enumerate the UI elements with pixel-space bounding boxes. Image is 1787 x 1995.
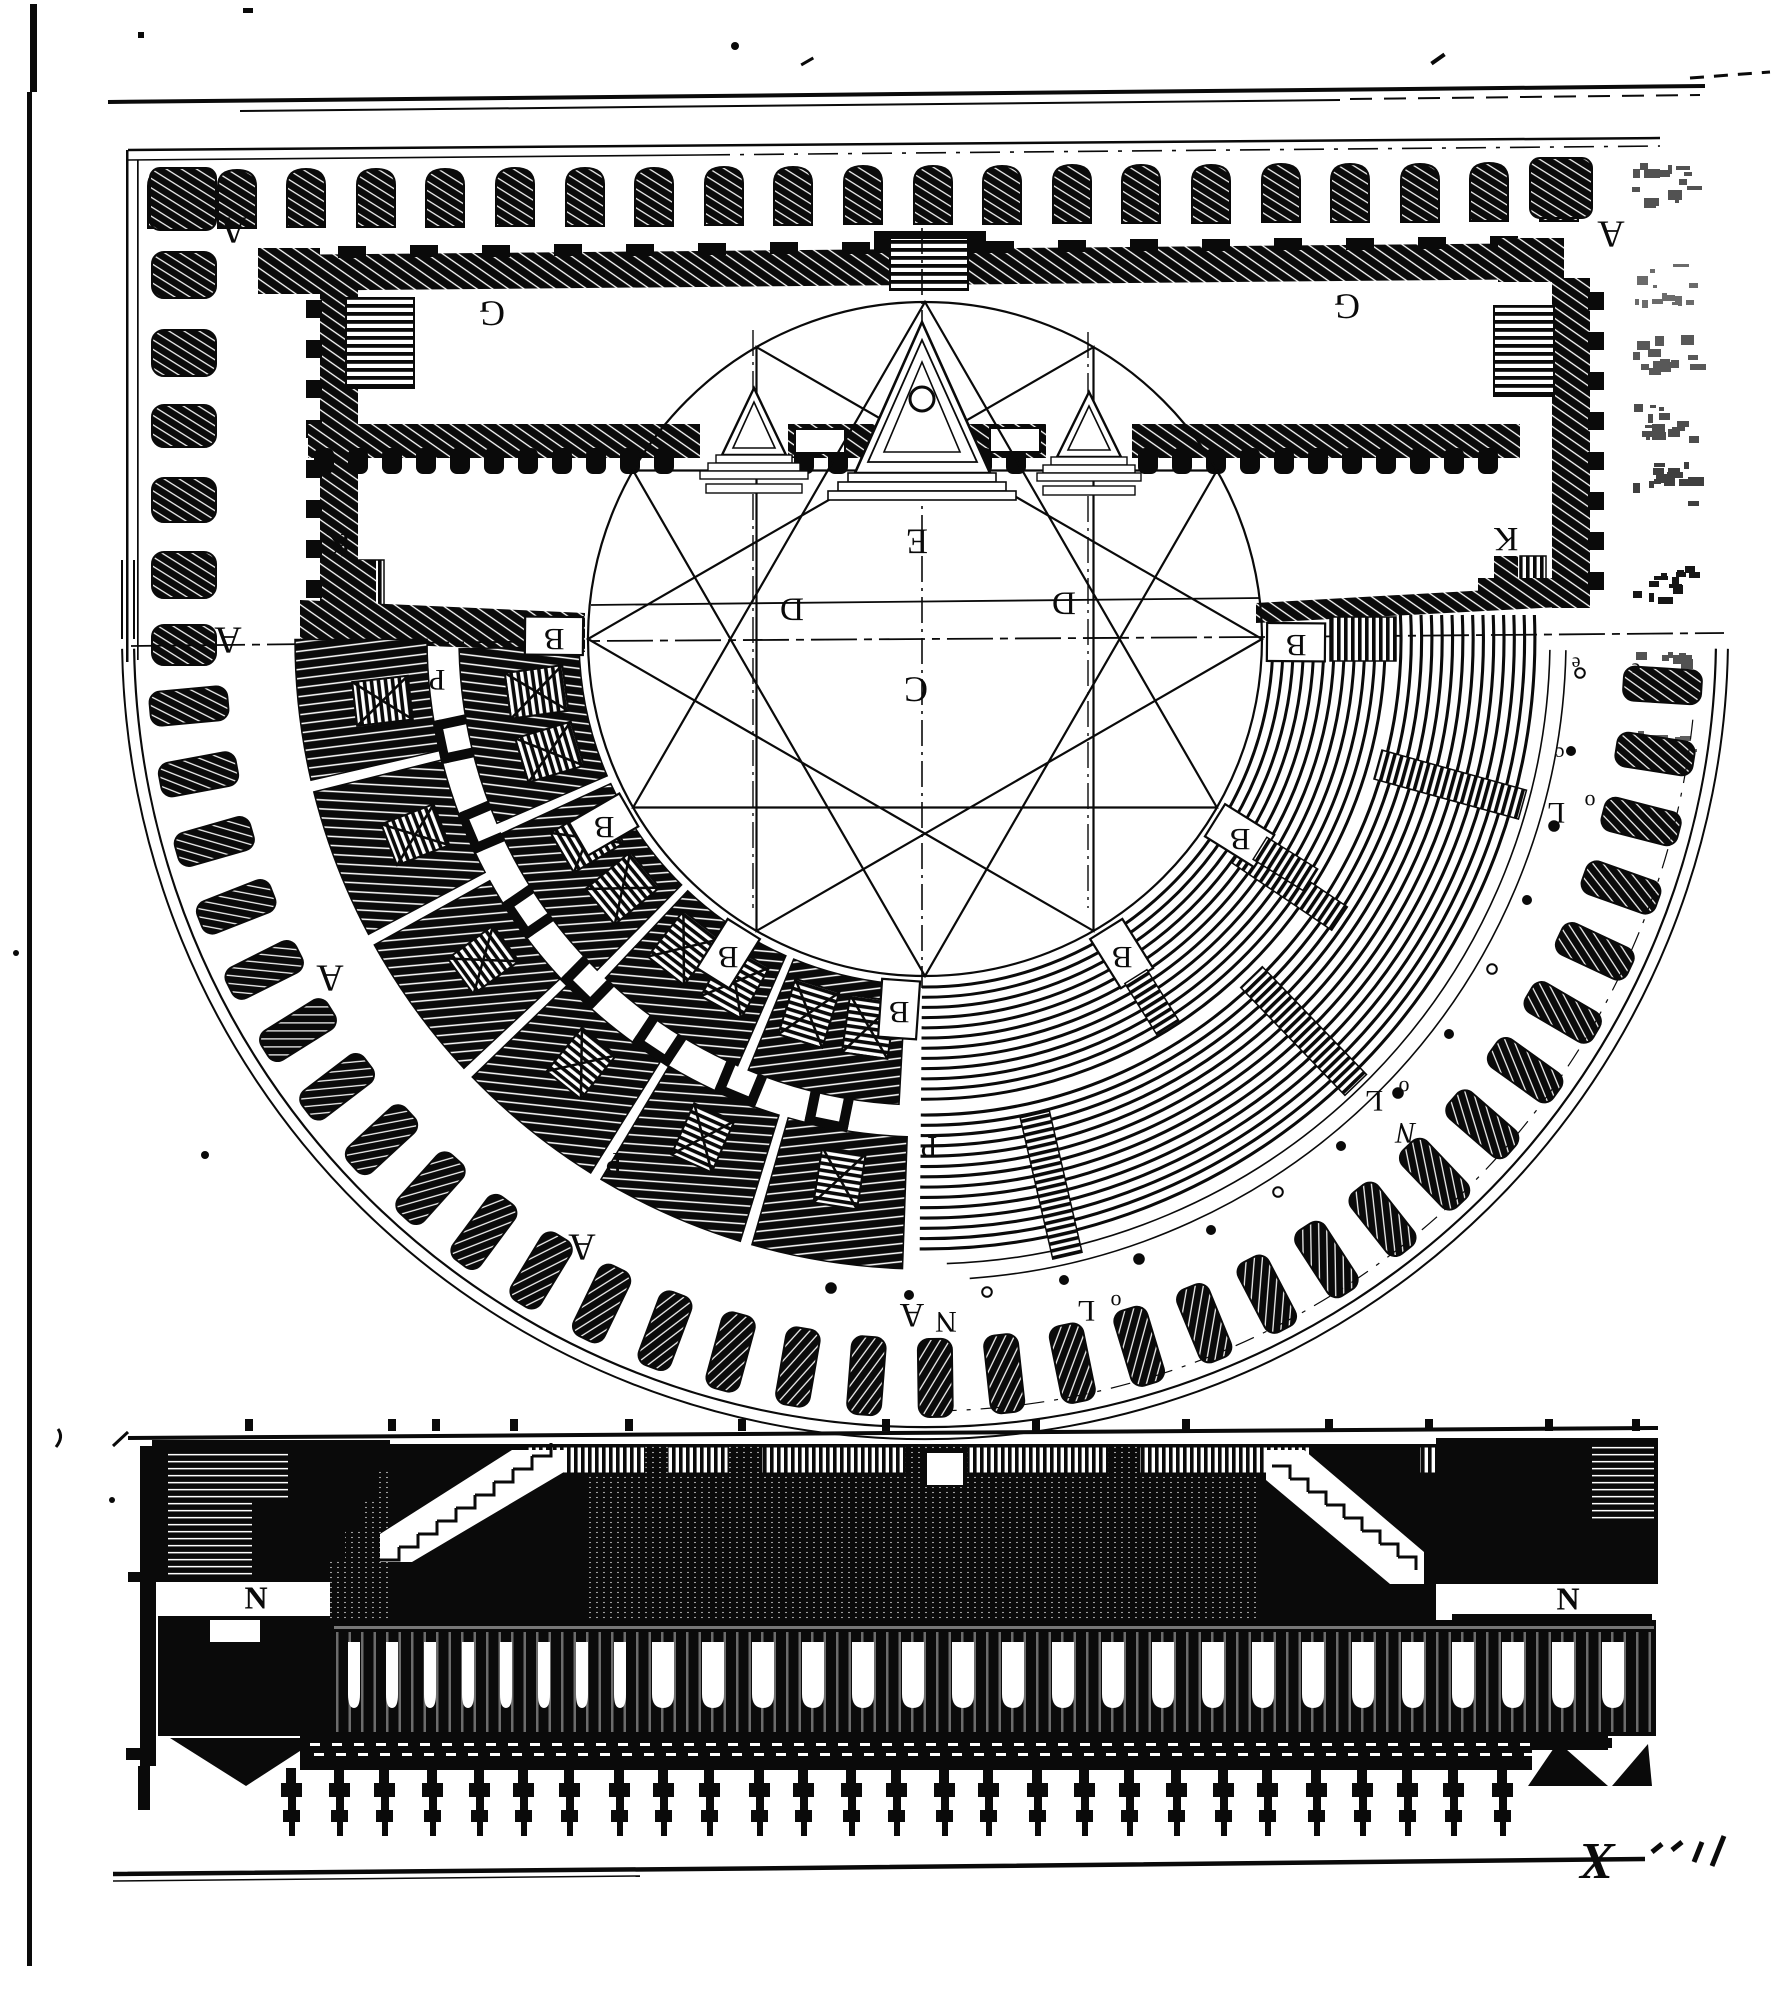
svg-text:o: o — [1585, 790, 1596, 815]
svg-text:P: P — [606, 1146, 623, 1179]
svg-text:X: X — [1578, 1832, 1616, 1889]
svg-text:o: o — [1399, 1076, 1410, 1101]
svg-text:D: D — [1052, 584, 1076, 620]
svg-text:N: N — [935, 1305, 957, 1338]
svg-text:A: A — [899, 1296, 924, 1333]
svg-text:c: c — [1555, 742, 1564, 764]
svg-text:L: L — [1365, 1084, 1383, 1117]
svg-text:D: D — [780, 590, 804, 626]
svg-text:B: B — [544, 622, 565, 657]
svg-text:B: B — [1230, 822, 1251, 857]
svg-text:L: L — [1547, 796, 1565, 829]
svg-text:N: N — [1394, 1116, 1417, 1149]
svg-text:e: e — [1571, 652, 1580, 674]
svg-text:A: A — [214, 618, 242, 660]
svg-text:B: B — [1286, 628, 1307, 663]
svg-text:N: N — [244, 1579, 267, 1615]
svg-text:A: A — [219, 208, 247, 250]
svg-text:K: K — [326, 526, 351, 563]
svg-text:G: G — [479, 294, 505, 334]
svg-text:B: B — [1112, 940, 1133, 975]
svg-text:c: c — [1631, 658, 1640, 680]
svg-text:C: C — [904, 670, 928, 710]
svg-text:P: P — [921, 1130, 938, 1163]
svg-text:B: B — [889, 995, 910, 1030]
svg-text:G: G — [1334, 287, 1360, 327]
svg-text:A: A — [568, 1225, 596, 1267]
svg-text:A: A — [1597, 212, 1625, 254]
svg-text:o: o — [1111, 1290, 1122, 1315]
svg-text:E: E — [906, 522, 928, 562]
svg-text:A: A — [316, 956, 344, 998]
svg-text:B: B — [718, 940, 739, 975]
svg-text:L: L — [1077, 1294, 1095, 1327]
svg-text:N: N — [1556, 1580, 1579, 1616]
svg-text:B: B — [594, 810, 615, 845]
svg-text:P: P — [429, 663, 446, 696]
svg-text:K: K — [1493, 520, 1518, 557]
